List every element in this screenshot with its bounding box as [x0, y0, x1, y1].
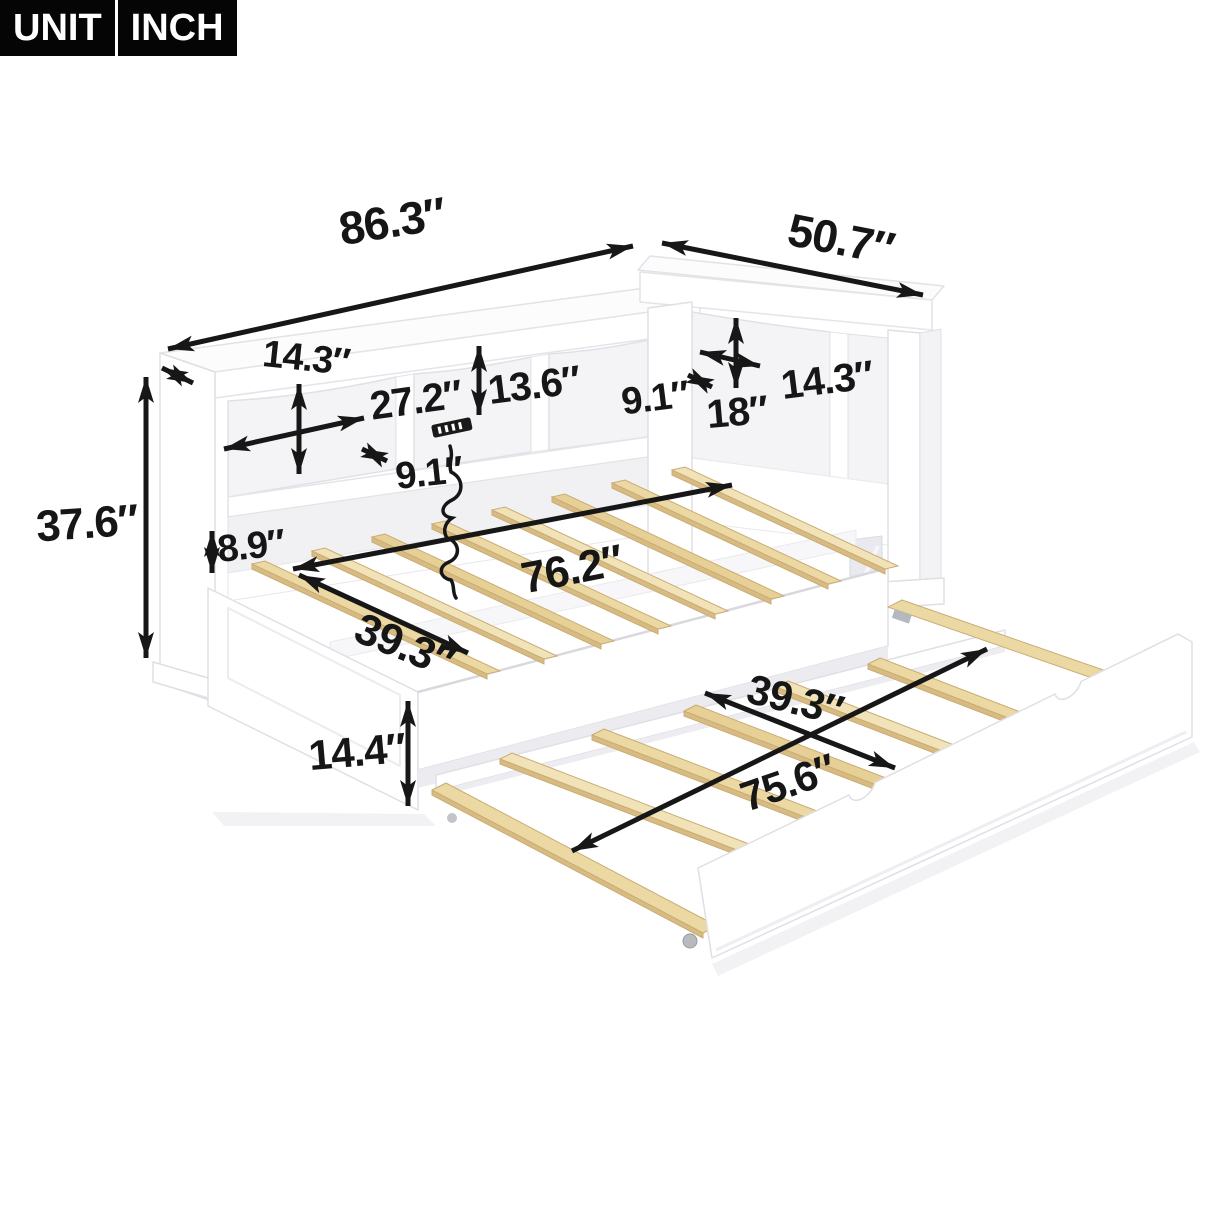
dim-right-cubby-width: 18″ [705, 388, 769, 438]
unit-badge-label: UNIT [0, 0, 115, 56]
unit-badge-value: INCH [118, 0, 237, 56]
caster-wheel [683, 934, 697, 948]
dim-overall-height: 37.6″ [35, 496, 140, 553]
furniture-illustration [0, 0, 1214, 1214]
dim-right-small-depth: 9.1″ [619, 374, 691, 425]
dim-lower-shelf-height: 8.9″ [215, 522, 286, 572]
dimension-diagram: UNIT INCH [0, 0, 1214, 1214]
trundle-end-rail [432, 783, 717, 933]
dim-left-small-depth: 9.1″ [393, 449, 464, 499]
dim-left-shelf-depth: 14.3″ [260, 333, 351, 385]
caster-wheel [447, 813, 457, 823]
dim-under-bed-height: 14.4″ [307, 724, 408, 780]
unit-badge: UNIT INCH [0, 0, 237, 56]
